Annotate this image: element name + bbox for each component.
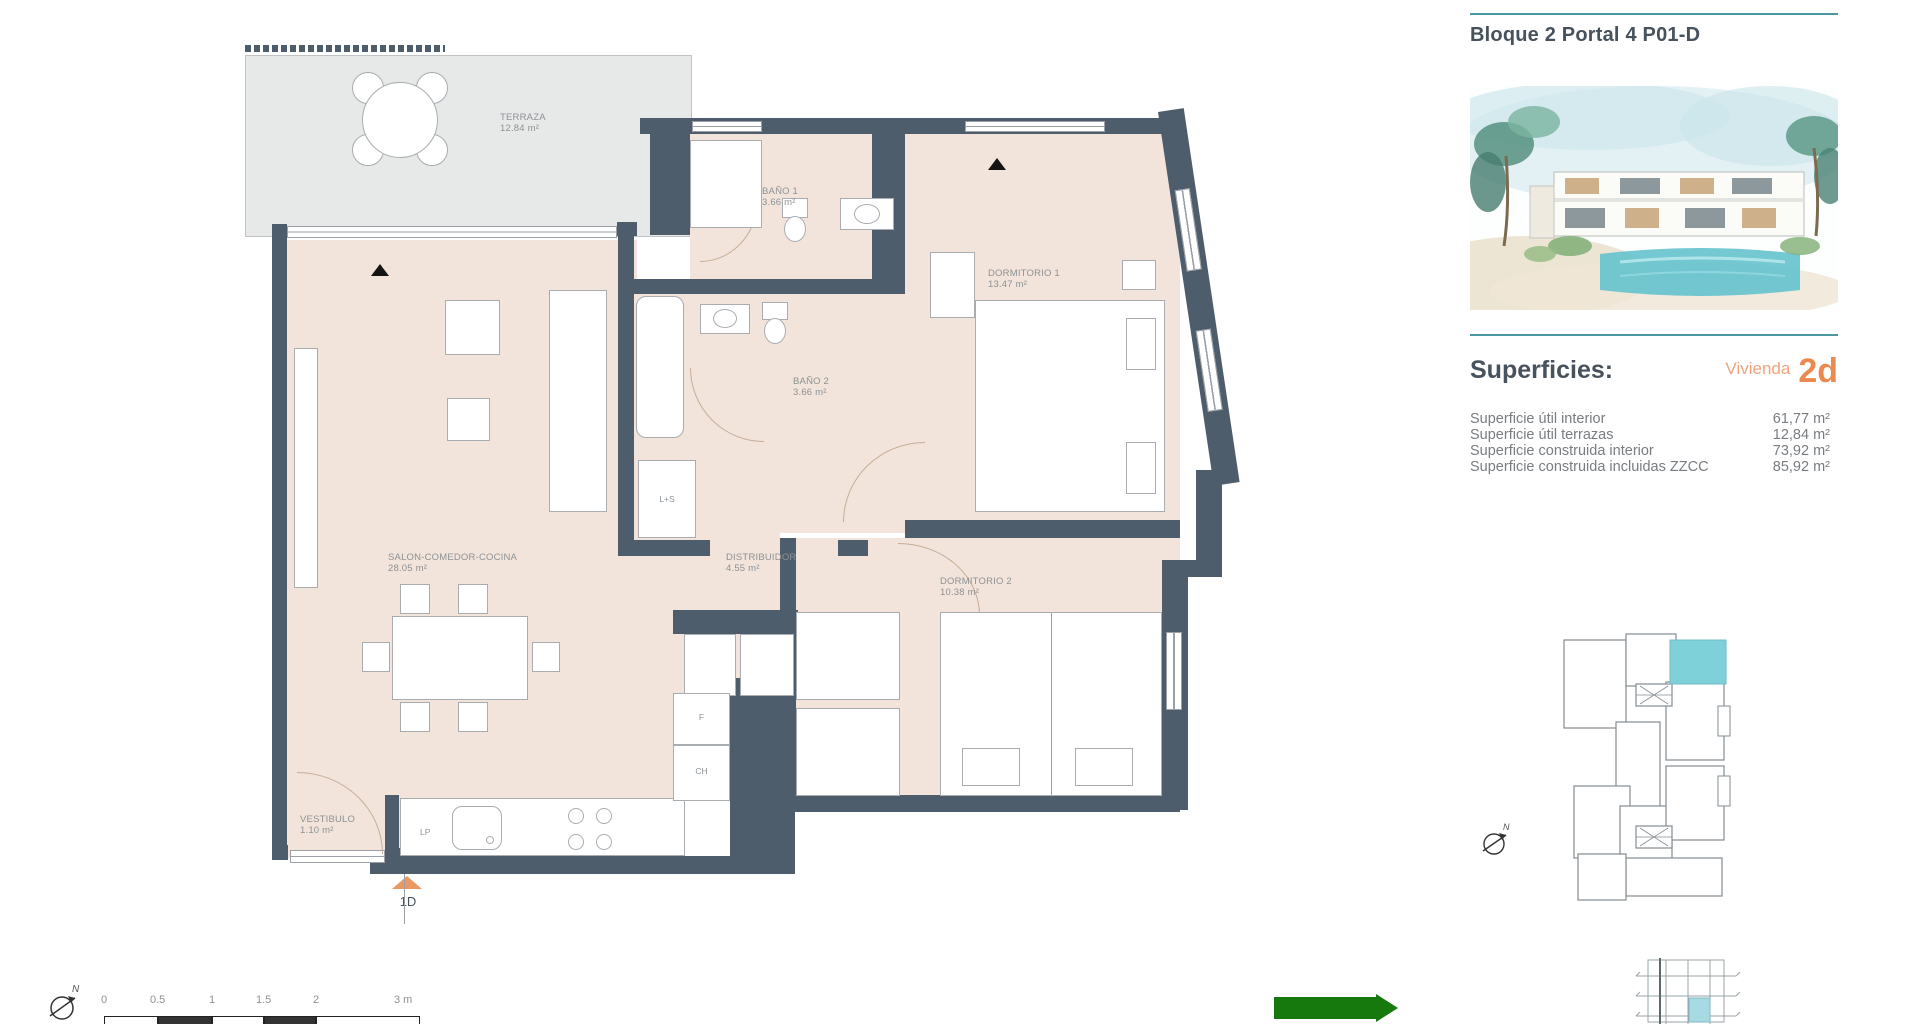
- terrace-top-hatch: [245, 45, 445, 52]
- room-label-salon: SALON-COMEDOR-COCINA 28.05 m²: [388, 552, 517, 574]
- hob-burner: [596, 808, 612, 824]
- svg-text:N: N: [1503, 822, 1510, 832]
- floor-plan: 1D TERRAZA 12.84 m² BAÑO 1 3.66 m² DORMI…: [0, 0, 1260, 960]
- shaft-box: [740, 634, 794, 696]
- compass-icon: N: [44, 982, 88, 1024]
- cabinet: [294, 348, 318, 588]
- pillow: [1126, 318, 1156, 370]
- room-label-dormitorio2: DORMITORIO 2 10.38 m²: [940, 576, 1012, 598]
- page-title: Bloque 2 Portal 4 P01-D: [1470, 24, 1700, 47]
- toilet-bowl: [784, 216, 806, 242]
- scale-tick: 0: [101, 994, 107, 1006]
- pillow: [1126, 442, 1156, 494]
- dining-table: [392, 616, 528, 700]
- vivienda-tag: Vivienda2d: [1640, 352, 1838, 391]
- vivienda-code: 2d: [1798, 352, 1838, 390]
- bed-split-line: [1051, 613, 1052, 795]
- window-bath1: [692, 121, 762, 132]
- label-fridge: F: [673, 712, 730, 722]
- wall: [650, 118, 690, 235]
- basin-bowl: [713, 309, 737, 328]
- wardrobe: [930, 252, 975, 318]
- divider-mid: [1470, 334, 1838, 336]
- wall: [272, 845, 288, 860]
- dining-chair: [400, 702, 430, 732]
- wall: [272, 235, 287, 860]
- wall: [618, 540, 710, 556]
- svg-text:N: N: [72, 984, 80, 995]
- reference-line: [404, 874, 405, 924]
- wall: [617, 222, 637, 236]
- dining-chair: [400, 584, 430, 614]
- scale-tick: 1.5: [256, 994, 271, 1006]
- room-label-dormitorio1: DORMITORIO 1 13.47 m²: [988, 268, 1060, 290]
- wall: [370, 856, 730, 874]
- room-label-distribuidor: DISTRIBUIDOR 4.55 m²: [726, 552, 797, 574]
- wall: [780, 795, 1180, 812]
- shaft-box: [684, 634, 736, 696]
- pouf: [447, 398, 490, 441]
- room-label-vestibulo: VESTIBULO 1.10 m²: [300, 814, 355, 836]
- hob-burner: [596, 834, 612, 850]
- wardrobe: [796, 612, 900, 700]
- hob-burner: [568, 808, 584, 824]
- wardrobe: [796, 708, 900, 796]
- window-bedroom2: [1166, 632, 1182, 710]
- key-plan-compass-icon: N: [1478, 820, 1518, 860]
- dining-chair: [362, 642, 390, 672]
- window-salon: [287, 226, 617, 238]
- armchair: [445, 300, 500, 355]
- window-bedroom1: [965, 121, 1105, 132]
- terrace-floor: [245, 55, 692, 237]
- wall: [838, 540, 868, 556]
- room-label-bano1: BAÑO 1 3.66 m²: [762, 186, 798, 208]
- sink-drain: [486, 836, 494, 844]
- label-washer: L+S: [638, 494, 696, 504]
- hob-burner: [568, 834, 584, 850]
- pillow: [962, 748, 1020, 786]
- sheet: 1D TERRAZA 12.84 m² BAÑO 1 3.66 m² DORMI…: [0, 0, 1920, 1024]
- window: [1196, 329, 1223, 412]
- vent-marker: [988, 158, 1006, 170]
- toilet-bowl: [764, 318, 786, 344]
- wall: [272, 224, 287, 238]
- elevation-key-partial: [1626, 958, 1746, 1024]
- superficies-heading: Superficies:: [1470, 356, 1613, 385]
- building-rendering-image: [1470, 86, 1838, 310]
- dining-chair: [532, 642, 560, 672]
- highlighted-unit-elevation: [1689, 998, 1710, 1022]
- vent-marker: [371, 264, 389, 276]
- label-dishwasher: LP: [420, 827, 430, 837]
- pillow: [1075, 748, 1133, 786]
- basin-bowl: [854, 204, 880, 224]
- room-label-terraza: TERRAZA 12.84 m²: [500, 112, 546, 134]
- divider-top: [1470, 13, 1838, 15]
- shower: [690, 140, 762, 228]
- dining-chair: [458, 584, 488, 614]
- vivienda-label: Vivienda: [1725, 359, 1790, 378]
- key-plan: [1558, 626, 1740, 914]
- bathtub: [636, 296, 684, 438]
- label-boiler: CH: [673, 766, 730, 776]
- nightstand: [1122, 260, 1156, 290]
- kitchen-sink: [452, 806, 502, 850]
- dining-chair: [458, 702, 488, 732]
- wall: [618, 233, 634, 555]
- scale-tick: 3 m: [394, 994, 412, 1006]
- wall: [905, 520, 1180, 538]
- room-label-bano2: BAÑO 2 3.66 m²: [793, 376, 829, 398]
- kitchen-counter: [400, 798, 685, 856]
- scale-tick: 0.5: [150, 994, 165, 1006]
- terrace-table: [362, 82, 438, 158]
- sofa: [549, 290, 607, 512]
- wall: [634, 279, 905, 294]
- scale-tick: 2: [313, 994, 319, 1006]
- entrance-marker: [392, 876, 422, 889]
- scale-tick: 1: [209, 994, 215, 1006]
- highlighted-unit: [1670, 640, 1726, 684]
- entrance-label: 1D: [388, 894, 428, 909]
